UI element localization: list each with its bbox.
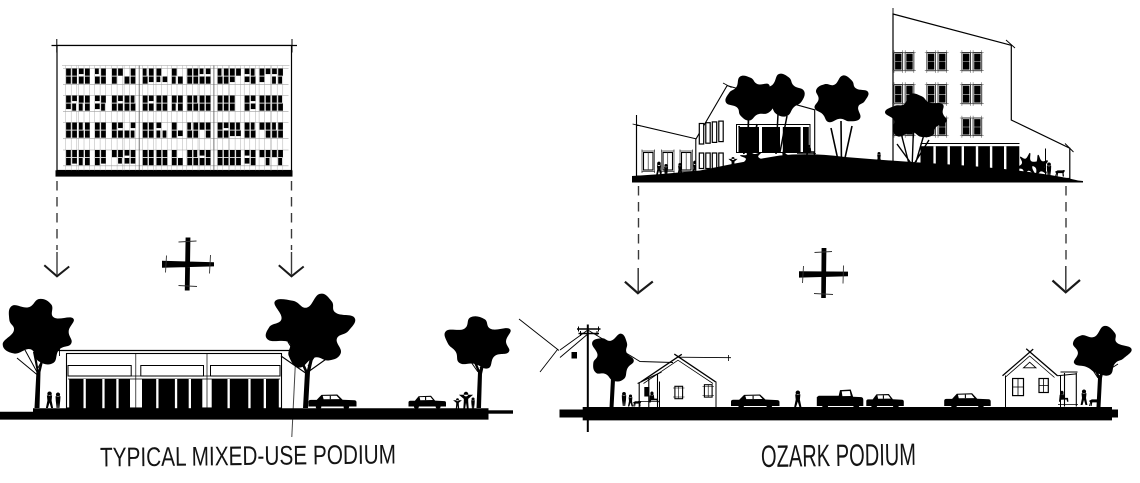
svg-text:TYPICAL MIXED-USE PODIUM: TYPICAL MIXED-USE PODIUM — [100, 439, 396, 472]
svg-text:OZARK PODIUM: OZARK PODIUM — [761, 437, 916, 474]
